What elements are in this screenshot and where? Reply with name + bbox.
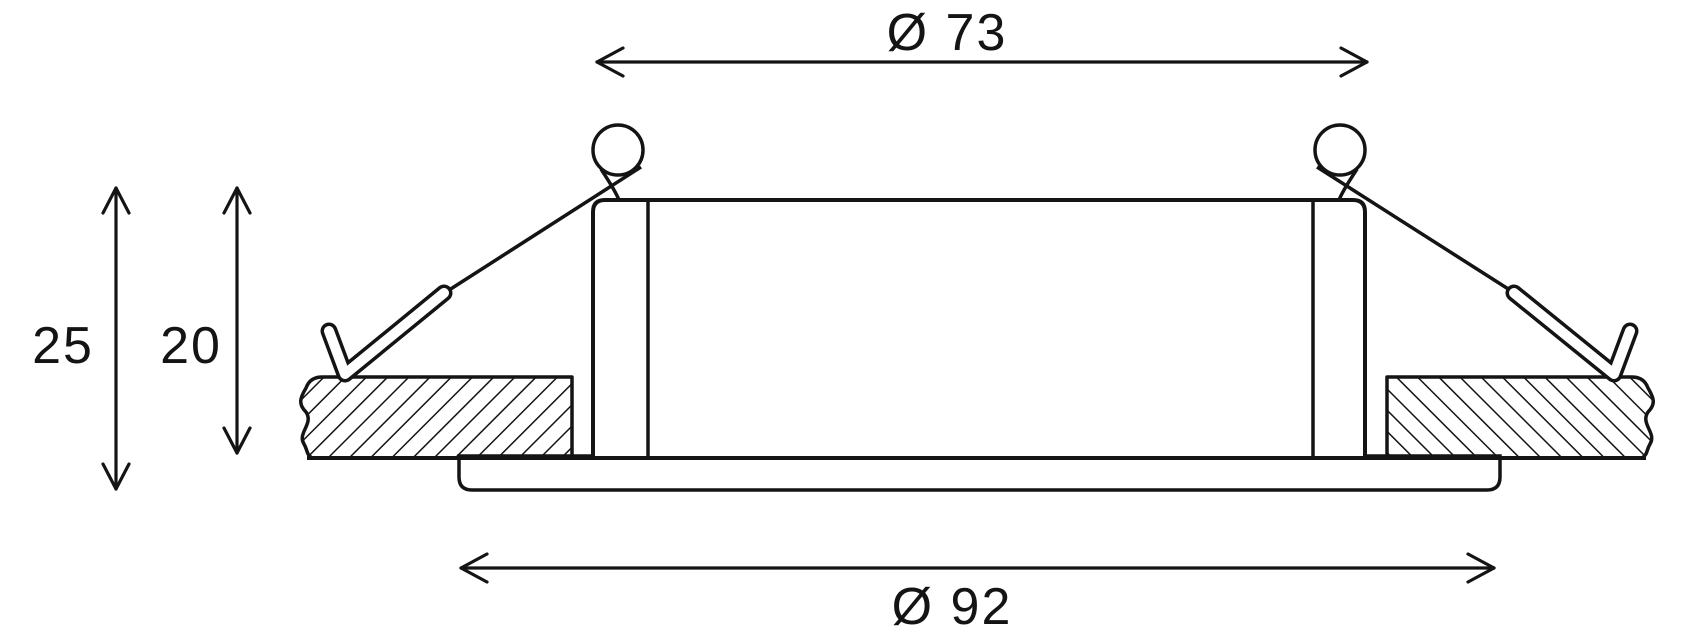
technical-drawing: Ø 73 Ø 92 25 20 bbox=[0, 0, 1689, 641]
trim-ring bbox=[459, 456, 1500, 490]
label-diameter-top: Ø 73 bbox=[887, 4, 1008, 62]
ceiling-panel-left bbox=[301, 377, 572, 458]
label-height-20: 20 bbox=[160, 317, 222, 375]
dimension-height-left bbox=[103, 188, 129, 489]
ceiling-left-hatch bbox=[301, 377, 572, 458]
spring-loop-left bbox=[593, 125, 643, 175]
ceiling-right-hatch bbox=[1387, 377, 1653, 458]
housing-body bbox=[593, 200, 1365, 458]
dimension-height-right bbox=[224, 188, 250, 453]
drawing-canvas: Ø 73 Ø 92 25 20 bbox=[0, 0, 1689, 641]
spring-loop-right bbox=[1315, 125, 1365, 175]
label-diameter-bottom: Ø 92 bbox=[892, 578, 1013, 636]
ceiling-panel-right bbox=[1387, 377, 1653, 458]
label-height-25: 25 bbox=[32, 317, 94, 375]
